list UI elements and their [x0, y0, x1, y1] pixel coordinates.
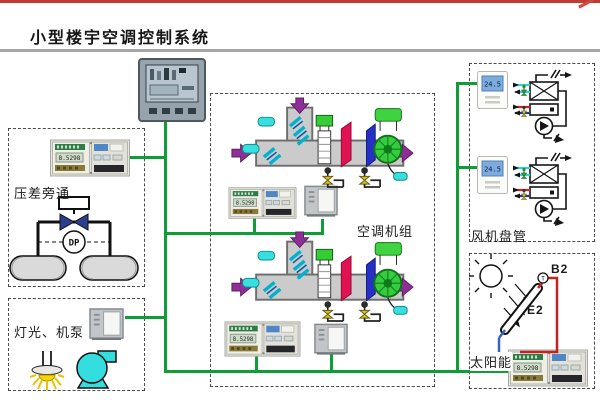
ahu-diagram-bottom: [226, 230, 416, 322]
tank-icon: [80, 256, 138, 280]
diagram-canvas: 小型楼宇空调控制系统: [0, 0, 600, 400]
io-panel-ahu-top: [304, 185, 338, 218]
io-panel-ahu-bottom: [314, 322, 348, 357]
temp-sensor-tag: T: [541, 276, 545, 283]
fcu-label: 风机盘管: [471, 226, 527, 245]
collector-e2-label: E2: [527, 303, 544, 317]
lighting-label: 灯光、机泵: [14, 322, 84, 341]
sun-icon: [469, 254, 513, 298]
mini-valve-icon: [522, 85, 527, 96]
thermostat-reading: 24.5: [484, 81, 501, 89]
valve-sensor-assembly: [360, 167, 380, 187]
page-title: 小型楼宇空调控制系统: [30, 24, 210, 48]
fan-actuator: [375, 109, 401, 122]
sensor-b2-label: B2: [551, 262, 568, 276]
bus-line-right-vertical: [456, 82, 459, 373]
valve-icon: [60, 214, 88, 230]
din-controller-bypass: 8.5298: [50, 138, 130, 178]
filter-icon: [318, 131, 331, 164]
filter-actuator: [316, 115, 332, 126]
controller-lcd-reading: 8.5298: [59, 155, 81, 162]
bypass-label: 压差旁通: [14, 183, 70, 202]
io-panel-lighting: [88, 308, 125, 341]
bus-drop-controller-bottom: [255, 356, 258, 373]
pump-icon: [72, 348, 118, 390]
header-divider: [0, 49, 600, 52]
din-controller-ahu-top: [223, 186, 302, 220]
duct-sensor-icon: [394, 173, 408, 181]
bus-line-main-vertical: [164, 122, 167, 373]
hmi-touch-panel: [138, 58, 206, 124]
thermostat-2: [477, 156, 508, 194]
dp-sensor-label: DP: [69, 239, 80, 249]
heating-coil-icon: [341, 122, 351, 167]
damper-actuator-icon: [258, 117, 274, 126]
ahu-label: 空调机组: [357, 221, 413, 240]
bypass-diagram: DP: [10, 196, 140, 286]
tank-icon: [10, 256, 66, 280]
thermostat-1: 24.5: [477, 71, 508, 109]
fcu-pipes: [515, 85, 530, 113]
fcu-diagram-1: [512, 70, 574, 144]
panel-door: [318, 189, 334, 212]
lamp-icon: [30, 350, 64, 392]
bus-line-bypass-branch: [130, 156, 167, 159]
fcu-diagram-2: [512, 153, 574, 227]
din-controller-ahu-bottom: [223, 320, 302, 358]
valve-sensor-assembly: [323, 167, 343, 187]
solar-label: 太阳能: [470, 352, 512, 371]
damper-actuator-icon: [243, 144, 259, 153]
bus-line-thermostat2-branch: [456, 166, 478, 169]
bus-line-thermostat1-branch: [456, 82, 478, 85]
bus-line-lighting-branch: [125, 316, 167, 319]
ahu-diagram-top: [226, 96, 416, 188]
top-accent-line: [0, 0, 600, 3]
